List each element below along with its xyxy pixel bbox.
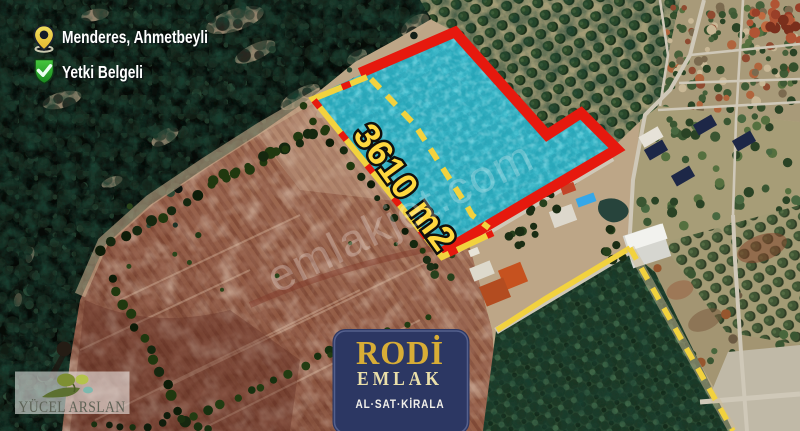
svg-text:Menderes, Ahmetbeyli: Menderes, Ahmetbeyli — [62, 27, 208, 47]
svg-text:Yetki Belgeli: Yetki Belgeli — [62, 62, 143, 82]
svg-text:EMLAK: EMLAK — [357, 368, 443, 390]
svg-text:YÜCEL ARSLAN: YÜCEL ARSLAN — [19, 399, 126, 416]
svg-text:AL·SAT·KİRALA: AL·SAT·KİRALA — [356, 398, 445, 411]
svg-text:RODİ: RODİ — [356, 334, 444, 372]
